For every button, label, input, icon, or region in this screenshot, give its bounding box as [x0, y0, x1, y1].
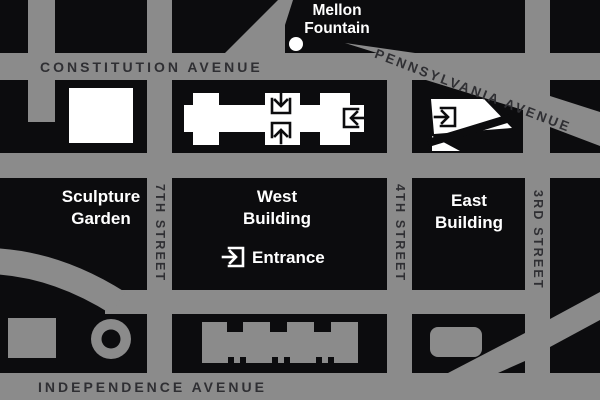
east-building-label: East Building — [394, 190, 544, 234]
city-block — [0, 80, 28, 153]
city-block — [550, 80, 600, 112]
footprint-notch — [227, 322, 243, 332]
national-gallery-area-map: Mellon Fountain CONSTITUTION AVENUE PENN… — [0, 0, 600, 400]
east-building-label-line1: East — [451, 191, 487, 210]
west-building-footprint-rotunda — [265, 93, 300, 145]
city-block — [550, 320, 600, 373]
round-building-hole — [102, 330, 121, 349]
west-building-label-line1: West — [257, 187, 297, 206]
city-block — [55, 0, 147, 53]
footprint-notch — [228, 357, 234, 363]
east-building-label-line2: Building — [435, 213, 503, 232]
city-block — [172, 0, 278, 53]
footprint-notch — [272, 357, 278, 363]
west-building-footprint-east-pavilion — [320, 93, 350, 145]
city-block — [550, 0, 600, 53]
rounded-building-footprint — [430, 327, 482, 357]
city-block — [498, 361, 525, 373]
footprint-notch — [314, 322, 331, 332]
constitution-avenue-label: CONSTITUTION AVENUE — [40, 59, 263, 75]
mellon-fountain-label-line2: Fountain — [304, 20, 369, 37]
sculpture-garden-label: Sculpture Garden — [26, 186, 176, 230]
footprint-notch — [316, 357, 322, 363]
sculpture-garden-label-line1: Sculpture — [62, 187, 140, 206]
building-footprint-square-gray — [8, 318, 56, 358]
west-building-label-line2: Building — [243, 209, 311, 228]
footprint-notch — [270, 322, 287, 332]
building-footprint-square-white — [69, 88, 133, 143]
city-block — [28, 122, 55, 153]
footprint-notch — [328, 357, 334, 363]
west-building-label: West Building — [202, 186, 352, 230]
city-block — [0, 0, 28, 53]
footprint-notch — [284, 357, 290, 363]
mellon-fountain-label: Mellon Fountain — [277, 2, 397, 38]
city-block — [550, 178, 600, 319]
mellon-fountain-label-line1: Mellon — [312, 2, 361, 19]
west-building-footprint-west-pavilion — [193, 93, 219, 145]
independence-avenue-label: INDEPENDENCE AVENUE — [38, 379, 267, 395]
entrance-legend-label: Entrance — [252, 248, 325, 268]
mellon-fountain-dot — [289, 37, 303, 51]
sculpture-garden-label-line2: Garden — [71, 209, 131, 228]
footprint-notch — [240, 357, 246, 363]
